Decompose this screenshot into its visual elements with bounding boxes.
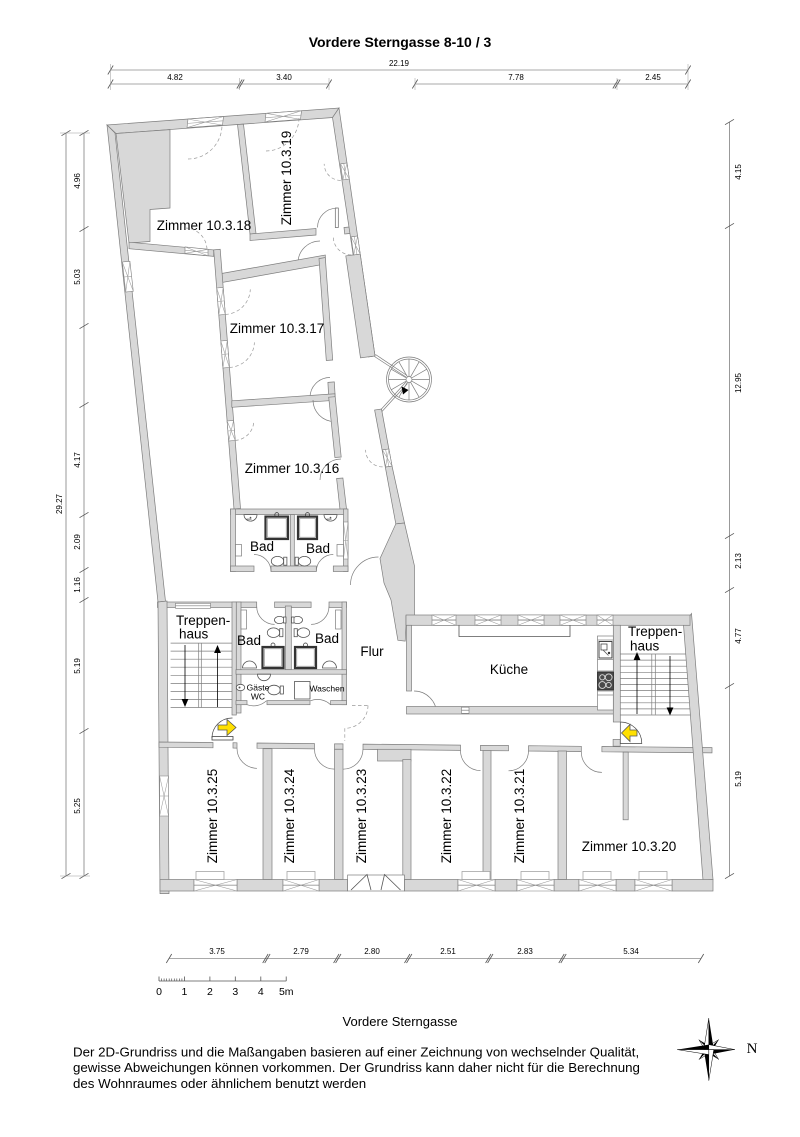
svg-text:4.82: 4.82 [167, 73, 183, 82]
svg-text:1: 1 [182, 986, 188, 998]
svg-text:4.96: 4.96 [73, 173, 82, 189]
svg-text:5.19: 5.19 [73, 658, 82, 674]
svg-text:4.15: 4.15 [734, 164, 743, 180]
svg-text:2.83: 2.83 [517, 947, 533, 956]
svg-text:5m: 5m [279, 986, 294, 998]
svg-text:2.09: 2.09 [73, 534, 82, 550]
svg-text:12.95: 12.95 [734, 372, 743, 393]
svg-text:haus: haus [630, 639, 660, 654]
svg-text:Waschen: Waschen [309, 684, 344, 694]
svg-text:Zimmer 10.3.18: Zimmer 10.3.18 [157, 218, 252, 233]
svg-text:2.79: 2.79 [293, 947, 309, 956]
svg-text:5.25: 5.25 [73, 798, 82, 814]
svg-text:3: 3 [232, 986, 238, 998]
svg-text:des Wohnraumes oder ähnlichem: des Wohnraumes oder ähnlichem benutzt we… [73, 1076, 366, 1091]
svg-text:4.17: 4.17 [73, 452, 82, 468]
svg-text:2.51: 2.51 [440, 947, 456, 956]
svg-text:gewisse Abweichungen können vo: gewisse Abweichungen können vorkommen. D… [73, 1060, 640, 1075]
svg-text:2.80: 2.80 [364, 947, 380, 956]
svg-text:29.27: 29.27 [55, 493, 64, 514]
svg-text:22.19: 22.19 [389, 59, 410, 68]
svg-text:Zimmer 10.3.24: Zimmer 10.3.24 [282, 768, 297, 863]
svg-text:2.45: 2.45 [645, 73, 661, 82]
svg-text:Zimmer 10.3.19: Zimmer 10.3.19 [279, 131, 294, 226]
svg-text:Der 2D-Grundriss und die Maßan: Der 2D-Grundriss und die Maßangaben basi… [73, 1045, 639, 1060]
svg-text:7.78: 7.78 [508, 73, 524, 82]
svg-text:Zimmer 10.3.16: Zimmer 10.3.16 [245, 461, 340, 476]
svg-text:Zimmer 10.3.22: Zimmer 10.3.22 [439, 769, 454, 864]
svg-text:5.19: 5.19 [734, 771, 743, 787]
svg-text:Bad: Bad [237, 633, 261, 648]
svg-text:Küche: Küche [490, 662, 528, 677]
svg-text:Bad: Bad [250, 539, 274, 554]
svg-text:Zimmer 10.3.20: Zimmer 10.3.20 [582, 839, 677, 854]
svg-text:0: 0 [156, 986, 162, 998]
svg-text:3.75: 3.75 [209, 947, 225, 956]
svg-text:Zimmer 10.3.17: Zimmer 10.3.17 [230, 321, 325, 336]
svg-text:Bad: Bad [306, 541, 330, 556]
svg-text:2.13: 2.13 [734, 553, 743, 569]
svg-text:N: N [747, 1041, 758, 1057]
svg-text:4.77: 4.77 [734, 628, 743, 644]
svg-text:2: 2 [207, 986, 213, 998]
svg-text:Vordere Sterngasse 8-10 / 3: Vordere Sterngasse 8-10 / 3 [309, 34, 492, 50]
svg-text:Treppen-: Treppen- [628, 624, 682, 639]
svg-text:Flur: Flur [360, 644, 384, 659]
svg-text:Zimmer 10.3.23: Zimmer 10.3.23 [354, 769, 369, 864]
svg-text:Zimmer 10.3.21: Zimmer 10.3.21 [512, 769, 527, 864]
svg-text:Bad: Bad [315, 631, 339, 646]
svg-text:Zimmer 10.3.25: Zimmer 10.3.25 [205, 769, 220, 864]
svg-text:Vordere Sterngasse: Vordere Sterngasse [343, 1014, 458, 1029]
svg-text:4: 4 [258, 986, 264, 998]
svg-text:5.34: 5.34 [623, 947, 639, 956]
svg-text:5.03: 5.03 [73, 269, 82, 285]
svg-text:1.16: 1.16 [73, 577, 82, 593]
svg-text:3.40: 3.40 [276, 73, 292, 82]
svg-text:haus: haus [179, 627, 209, 642]
svg-text:WC: WC [251, 692, 265, 702]
